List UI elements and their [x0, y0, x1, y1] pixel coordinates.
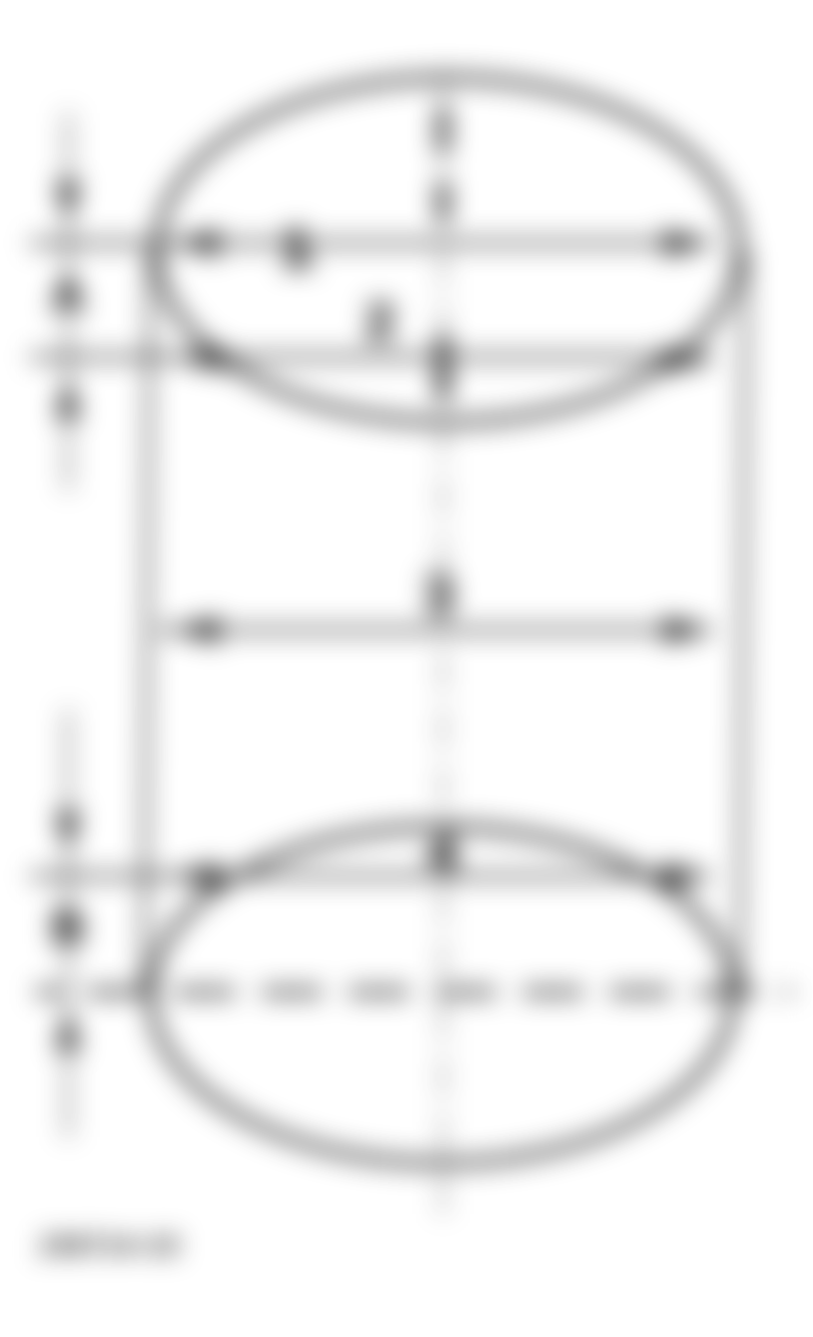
svg-text:J36714-10: J36714-10	[38, 1230, 180, 1260]
svg-text:1: 1	[283, 220, 312, 278]
svg-text:2: 2	[366, 293, 395, 351]
svg-text:B: B	[51, 901, 84, 953]
svg-text:4: 4	[427, 823, 457, 883]
svg-text:3: 3	[424, 565, 454, 625]
svg-text:A: A	[51, 268, 84, 320]
